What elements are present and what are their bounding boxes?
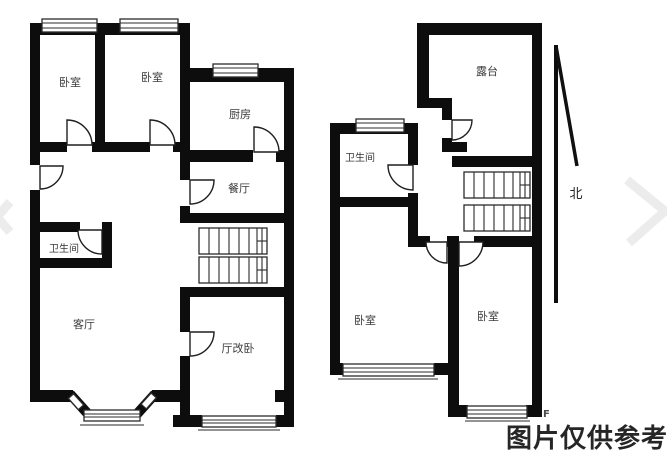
door-arc: [254, 127, 279, 152]
door-arc: [452, 120, 472, 140]
corner-mark: F: [543, 409, 550, 420]
room-label-terrace: 露台: [476, 64, 498, 78]
window: [120, 19, 178, 32]
room-label-living-room: 客厅: [73, 317, 95, 331]
door-arc: [388, 165, 413, 190]
window: [198, 416, 280, 430]
door-arc: [67, 120, 92, 145]
north-label: 北: [569, 187, 582, 202]
room-label-bathroom: 卫生间: [345, 151, 375, 164]
window: [338, 364, 438, 379]
window: [42, 19, 97, 32]
room-label-kitchen: 厨房: [229, 108, 251, 121]
room-label-dining-room: 餐厅: [228, 181, 250, 195]
window: [213, 64, 258, 77]
room-label-bedroom-right: 卧室: [477, 309, 499, 323]
chevron-right-icon[interactable]: [627, 180, 665, 243]
staircase: [464, 172, 530, 231]
door-arc: [150, 120, 175, 145]
floor-plan-page: 卧室 卧室 厨房 餐厅 卫生间 客厅 厅改卧: [0, 0, 667, 453]
north-arrow-icon: 北: [554, 45, 583, 303]
room-label-bedroom-2: 卧室: [141, 70, 163, 84]
left-floor-plan: 卧室 卧室 厨房 餐厅 卫生间 客厅 厅改卧: [30, 19, 294, 430]
window: [465, 406, 530, 421]
room-label-bedroom-1: 卧室: [59, 75, 81, 89]
staircase: [199, 228, 267, 283]
room-label-hall-bedroom: 厅改卧: [222, 341, 255, 355]
door-arc: [40, 166, 63, 189]
door-arc: [78, 230, 102, 254]
floor-plan-canvas: 卧室 卧室 厨房 餐厅 卫生间 客厅 厅改卧: [0, 0, 667, 453]
door-arc: [426, 242, 447, 263]
right-floor-plan: 露台 卫生间 卧室 卧室: [330, 23, 542, 421]
room-label-bathroom: 卫生间: [49, 242, 79, 255]
window: [356, 119, 404, 132]
door-arc: [190, 332, 214, 356]
watermark-text: 图片仅供参考: [506, 423, 667, 453]
room-label-bedroom-left: 卧室: [354, 313, 376, 327]
door-arc: [459, 242, 483, 266]
chevron-left-icon[interactable]: [0, 202, 10, 232]
door-arc: [190, 180, 214, 204]
